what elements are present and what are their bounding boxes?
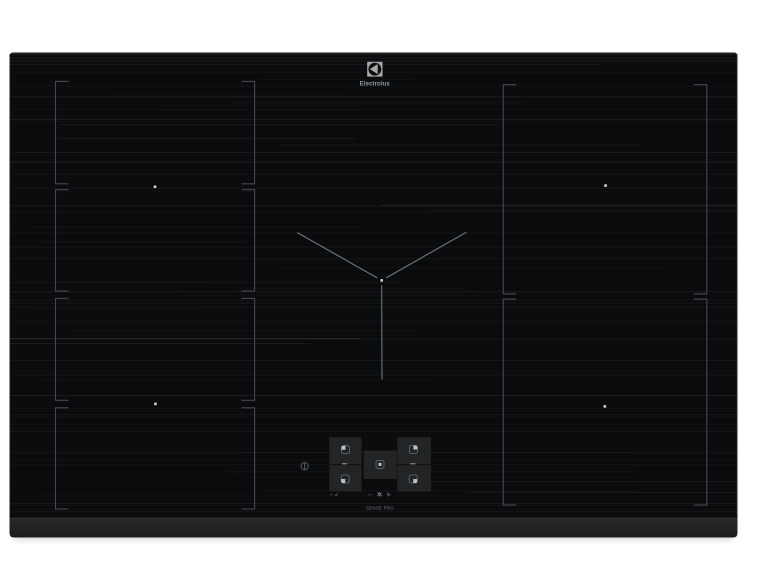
svg-text:Electrolux: Electrolux: [360, 81, 391, 87]
svg-text:SENSE PRO: SENSE PRO: [366, 505, 394, 510]
